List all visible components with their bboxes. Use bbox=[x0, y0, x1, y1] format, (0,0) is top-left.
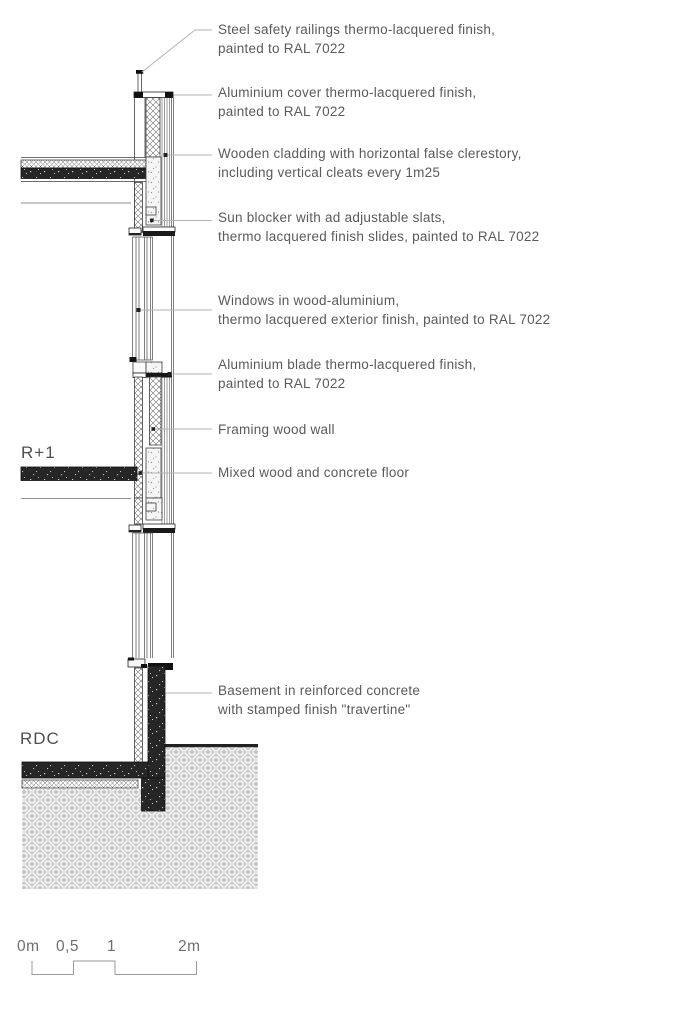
annotation-line: painted to RAL 7022 bbox=[218, 102, 476, 121]
facade-section-sheet: Steel safety railings thermo-lacquered f… bbox=[0, 0, 700, 1022]
rdc-concrete-slab bbox=[22, 762, 148, 778]
annotation-wooden-cladding: Wooden cladding with horizontal false cl… bbox=[218, 144, 522, 182]
r1-concrete-slab bbox=[21, 467, 137, 481]
window-upper bbox=[133, 237, 153, 360]
annotation-line: Wooden cladding with horizontal false cl… bbox=[218, 144, 522, 163]
cladding-lines bbox=[162, 98, 174, 658]
annotation-line: thermo lacquered exterior finish, painte… bbox=[218, 310, 550, 329]
scale-label-1: 1 bbox=[107, 938, 116, 956]
parapet-insulation bbox=[146, 98, 160, 158]
annotation-line: including vertical cleats every 1m25 bbox=[218, 163, 522, 182]
annotation-line: Mixed wood and concrete floor bbox=[218, 463, 409, 482]
annotation-line: painted to RAL 7022 bbox=[218, 39, 495, 58]
annotation-steel-safety-railings: Steel safety railings thermo-lacquered f… bbox=[218, 20, 495, 58]
annotation-line: Aluminium cover thermo-lacquered finish, bbox=[218, 83, 476, 102]
annotation-sun-blocker: Sun blocker with ad adjustable slats, th… bbox=[218, 208, 539, 246]
scale-label-05: 0,5 bbox=[56, 938, 79, 956]
window-lower bbox=[133, 533, 153, 658]
roof-concrete-slab bbox=[21, 168, 146, 179]
annotation-aluminium-blade: Aluminium blade thermo-lacquered finish,… bbox=[218, 355, 476, 393]
annotation-mixed-floor: Mixed wood and concrete floor bbox=[218, 463, 409, 482]
annotation-line: Aluminium blade thermo-lacquered finish, bbox=[218, 355, 476, 374]
annotation-line: Sun blocker with ad adjustable slats, bbox=[218, 208, 539, 227]
annotation-line: Windows in wood-aluminium, bbox=[218, 291, 550, 310]
leader-steel-safety-railings bbox=[142, 30, 212, 72]
railing-post bbox=[138, 73, 142, 93]
r1-floor-slab bbox=[21, 467, 137, 499]
annotation-line: with stamped finish "travertine" bbox=[218, 700, 420, 719]
annotation-framing-wood-wall: Framing wood wall bbox=[218, 420, 335, 439]
annotation-line: Steel safety railings thermo-lacquered f… bbox=[218, 20, 495, 39]
scale-bar bbox=[32, 961, 197, 975]
basement-footing bbox=[142, 778, 166, 811]
basement-insulation bbox=[135, 668, 143, 763]
annotation-aluminium-cover: Aluminium cover thermo-lacquered finish,… bbox=[218, 83, 476, 121]
annotation-line: thermo lacquered finish slides, painted … bbox=[218, 227, 539, 246]
basement-concrete-wall bbox=[148, 666, 165, 778]
annotation-line: painted to RAL 7022 bbox=[218, 374, 476, 393]
drip-edge bbox=[165, 666, 173, 670]
rdc-underslab-insulation bbox=[22, 780, 138, 788]
ground-level-line bbox=[165, 744, 258, 747]
annotation-basement: Basement in reinforced concrete with sta… bbox=[218, 681, 420, 719]
inner-insulation bbox=[135, 183, 143, 233]
rdc-floor-slab bbox=[22, 762, 148, 788]
roof-terrace-slab bbox=[21, 158, 146, 204]
annotation-line: Basement in reinforced concrete bbox=[218, 681, 420, 700]
level-label-r1: R+1 bbox=[21, 443, 56, 463]
spandrel-wall bbox=[129, 377, 175, 533]
scale-label-2m: 2m bbox=[178, 938, 201, 956]
annotation-line: Framing wood wall bbox=[218, 420, 335, 439]
annotation-windows: Windows in wood-aluminium, thermo lacque… bbox=[218, 291, 550, 329]
scale-label-0m: 0m bbox=[17, 938, 40, 956]
level-label-rdc: RDC bbox=[20, 729, 60, 749]
